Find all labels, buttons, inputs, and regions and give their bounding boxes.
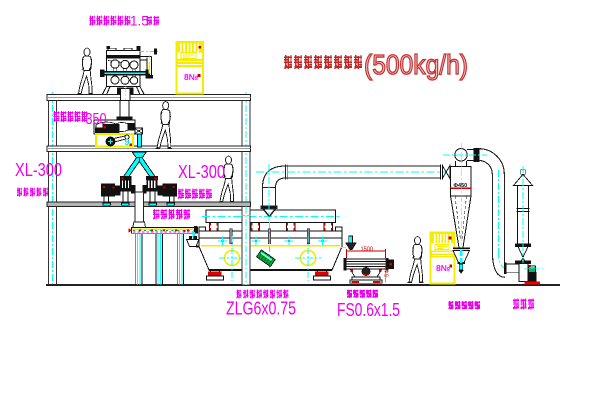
svg-text:XL-300: XL-300 xyxy=(178,161,225,182)
svg-text:1500: 1500 xyxy=(361,247,374,253)
svg-text:350: 350 xyxy=(86,111,107,128)
svg-text:Φ450: Φ450 xyxy=(454,183,468,189)
svg-text:XL-300: XL-300 xyxy=(15,159,62,180)
svg-text:9: 9 xyxy=(125,137,130,147)
svg-text:8№: 8№ xyxy=(436,263,451,273)
svg-text:(500kg/h): (500kg/h) xyxy=(364,49,468,80)
svg-text:8№: 8№ xyxy=(184,72,199,82)
svg-text:1.5: 1.5 xyxy=(130,14,149,29)
svg-text:ZLG6x0.75: ZLG6x0.75 xyxy=(226,299,296,319)
svg-text:FS0.6x1.5: FS0.6x1.5 xyxy=(337,300,400,320)
svg-text:540: 540 xyxy=(385,267,391,277)
